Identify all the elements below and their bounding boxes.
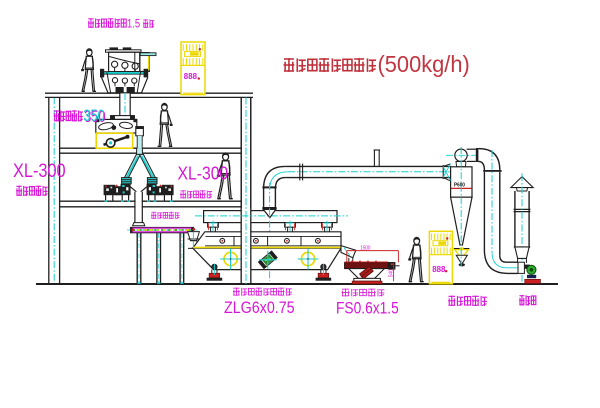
svg-text:888: 888 <box>432 265 446 274</box>
svg-text:XL-300: XL-300 <box>178 162 229 184</box>
svg-text:XL-300: XL-300 <box>13 160 66 181</box>
svg-text:350: 350 <box>83 107 105 126</box>
svg-text:FS0.6x1.5: FS0.6x1.5 <box>336 299 399 318</box>
svg-text:P600: P600 <box>454 182 465 188</box>
svg-text:540: 540 <box>388 269 394 277</box>
svg-text:888: 888 <box>184 72 198 81</box>
svg-text:1500: 1500 <box>360 245 370 252</box>
svg-text:ZLG6x0.75: ZLG6x0.75 <box>224 299 295 317</box>
svg-text:1.5: 1.5 <box>127 18 140 31</box>
svg-text:(500kg/h): (500kg/h) <box>378 50 470 77</box>
